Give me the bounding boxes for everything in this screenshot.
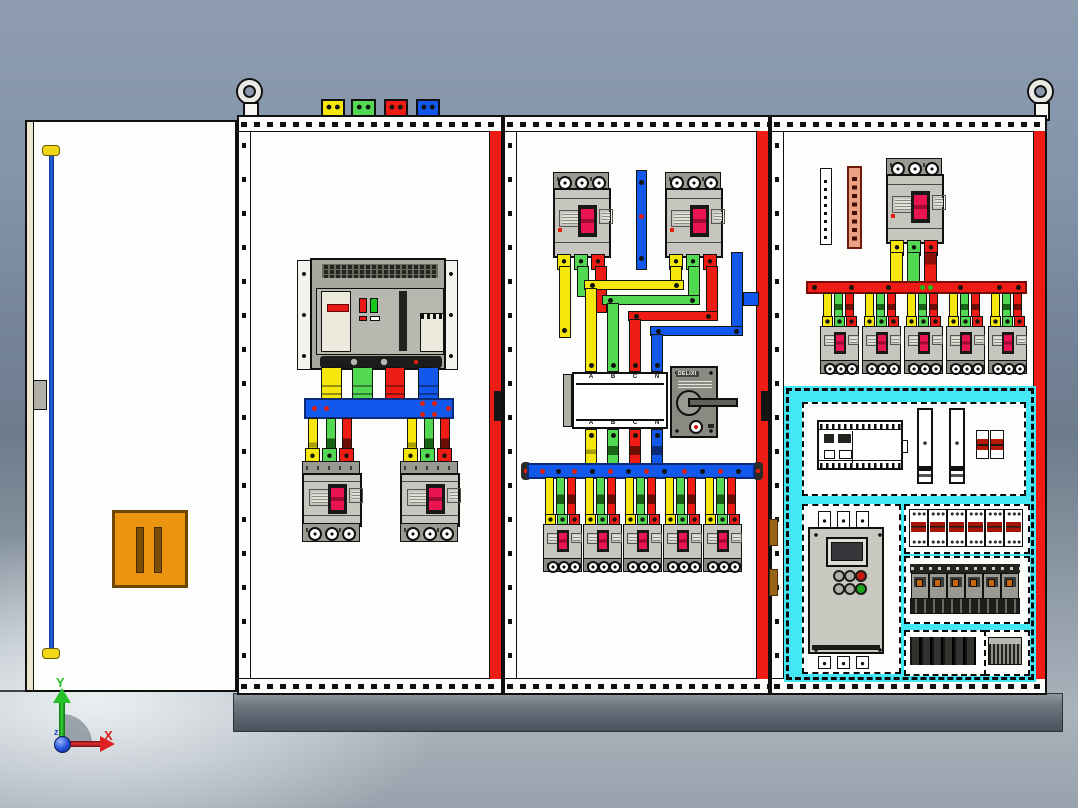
door-stiffener-rod (49, 152, 54, 657)
terminal-bolt (308, 527, 322, 541)
terminal-bolt (342, 527, 356, 541)
phase-bar-red (971, 293, 980, 317)
din-module (949, 408, 965, 484)
acb-nameplate (321, 291, 351, 352)
cross-bar-yellow (584, 280, 684, 290)
phase-trio (665, 477, 696, 515)
breaker-info-label (932, 195, 946, 210)
acb-terminal-cover (420, 313, 444, 352)
plc-port[interactable] (824, 450, 835, 459)
breaker-toggle[interactable] (719, 533, 727, 549)
orientation-triad: Y X z (30, 675, 150, 765)
breaker-toggle[interactable] (693, 209, 706, 233)
plc-side-tab (902, 440, 908, 453)
breaker-info-label (848, 335, 859, 345)
acb-off-button[interactable] (359, 298, 367, 313)
plc-relay-icon (824, 434, 834, 443)
breaker-body (988, 326, 1027, 362)
switch-brand-label: DELIXI (676, 371, 699, 377)
soft-starter (808, 527, 884, 654)
breaker-terminal-shroud (583, 558, 622, 572)
mccb-outgoing (904, 316, 941, 372)
terminal-relay-module (928, 509, 947, 547)
feed-bar-yellow (890, 252, 903, 283)
acb-indicator-white (370, 316, 380, 321)
switch-feed-yellow (585, 288, 597, 372)
starter-terminal-tab (837, 656, 850, 669)
phase-bar-yellow (907, 293, 916, 317)
phase-bar-yellow (705, 477, 714, 515)
breaker-terminal-shroud (946, 360, 985, 374)
terminal-bolt (1014, 363, 1026, 375)
breaker-info-label (731, 533, 742, 543)
phase-trio (585, 477, 616, 515)
phase-bar-green (716, 477, 725, 515)
phase-bar-green (556, 477, 565, 515)
breaker-terminal-shroud (862, 360, 901, 374)
switch-text-lines (678, 381, 712, 390)
switch-terminal-label: C (630, 373, 640, 381)
breaker-body (665, 188, 723, 258)
phase-trio (949, 293, 980, 317)
breaker-terminal-shroud (820, 360, 859, 374)
breaker-body (400, 473, 460, 527)
breaker-info-label (1016, 335, 1027, 345)
bay-frame-top (772, 117, 1045, 132)
lifting-eye-right (1029, 80, 1052, 103)
breaker-toggle[interactable] (836, 335, 844, 351)
phase-trio (823, 293, 854, 317)
starter-terminal-tab (818, 656, 831, 669)
acb-face-panel (316, 288, 444, 355)
phase-bar-green (1002, 293, 1011, 317)
din-breaker[interactable] (965, 573, 983, 599)
breaker-info-label (447, 488, 461, 503)
z-axis-label: z (54, 727, 59, 737)
acb-busbar-red (385, 367, 405, 400)
breaker-info-label (974, 335, 985, 345)
bay-frame-left (772, 131, 784, 679)
breaker-toggle[interactable] (559, 533, 567, 549)
riser-red (706, 266, 718, 313)
phase-trio (907, 293, 938, 317)
phase-bar-red (929, 293, 938, 317)
contactor-block (910, 637, 976, 665)
phase-bar-red (607, 477, 616, 515)
acb-busbar-blue (418, 367, 439, 400)
phase-bar-green (676, 477, 685, 515)
phase-trio (705, 477, 736, 515)
din-breaker[interactable] (911, 573, 929, 599)
mccb-outgoing (862, 316, 899, 372)
origin-sphere (54, 736, 71, 753)
breaker-indicator (558, 228, 562, 232)
acb-indicator-red (359, 316, 367, 321)
phase-bar-yellow (823, 293, 832, 317)
phase-bar-yellow (865, 293, 874, 317)
relay-pair-block (976, 430, 989, 459)
riser-green (688, 266, 700, 297)
breaker-toggle[interactable] (331, 488, 344, 510)
terminal-bolt (609, 561, 621, 573)
acb-busbar-green (352, 367, 373, 400)
acb-flange-left (297, 260, 311, 370)
rod-clamp-bottom (42, 648, 60, 659)
cabinet-plinth (233, 693, 1063, 732)
breaker-toggle[interactable] (962, 335, 970, 351)
breaker-body (886, 174, 944, 244)
comb-terminal-block (988, 637, 1022, 665)
terminal-bolt (423, 527, 437, 541)
mccb-outgoing (623, 514, 660, 570)
terminal-bolt (325, 527, 339, 541)
breaker-info-label (349, 488, 363, 503)
heater-slot (136, 527, 144, 573)
mccb-outgoing (820, 316, 857, 372)
phase-bar-red (687, 477, 696, 515)
starter-display-screen (831, 542, 863, 561)
plc-port[interactable] (839, 450, 852, 459)
breaker-info-label (890, 335, 901, 345)
breaker-info-label (599, 209, 613, 224)
bay-frame-left (505, 131, 517, 679)
terminal-bolt (930, 363, 942, 375)
switch-feed-green (607, 303, 619, 372)
breaker-body (904, 326, 943, 362)
neutral-riser-center (636, 170, 647, 270)
breaker-terminal-shroud (663, 558, 702, 572)
y-axis-label: Y (56, 675, 65, 690)
terminal-relay-module (985, 509, 1004, 547)
phase-bar-red (647, 477, 656, 515)
rod-clamp-top (42, 145, 60, 156)
starter-terminal-tab (837, 511, 850, 528)
breaker-toggle[interactable] (1004, 335, 1012, 351)
switch-terminal-label: B (608, 419, 618, 427)
breaker-info-label (611, 533, 622, 543)
breaker-indicator (670, 228, 674, 232)
breaker-toggle[interactable] (639, 533, 647, 549)
terminal-bolt (649, 561, 661, 573)
bay-frame-bottom (239, 678, 501, 693)
neutral-link-strip (820, 168, 832, 245)
mccb-feeder-2 (400, 448, 456, 540)
plc-relay-icon (838, 434, 851, 443)
door-heater-box (112, 510, 188, 588)
door-latch-bar (761, 391, 769, 421)
phase-bar-yellow (949, 293, 958, 317)
y-axis-arrowhead (53, 688, 71, 703)
breaker-toggle[interactable] (878, 335, 886, 351)
switch-handle[interactable] (688, 398, 738, 407)
acb-busbar-yellow (321, 367, 342, 400)
terminal-bolt (406, 527, 420, 541)
breaker-toggle[interactable] (914, 195, 927, 219)
breaker-body (703, 524, 742, 560)
switch-terminal-label: N (652, 373, 662, 381)
mccb-outgoing (988, 316, 1025, 372)
phase-bar-yellow (545, 477, 554, 515)
breaker-toggle[interactable] (920, 335, 928, 351)
terminal-relay-module (966, 509, 985, 547)
phase-bar-green (834, 293, 843, 317)
phase-bar-yellow (991, 293, 1000, 317)
breaker-terminal-shroud (302, 523, 360, 542)
lifting-eye-left (238, 80, 261, 103)
feed-bar-red (924, 252, 937, 283)
starter-terminal-tab (856, 656, 869, 669)
phase-bar-green (960, 293, 969, 317)
din-breaker[interactable] (983, 573, 1001, 599)
phase-trio (545, 477, 576, 515)
phase-bar-green (596, 477, 605, 515)
bay-frame-left (239, 131, 251, 679)
plc-module (817, 420, 903, 470)
copper-earth-bar (847, 166, 862, 249)
breaker-toggle[interactable] (599, 533, 607, 549)
acb-rating-plug (327, 304, 349, 312)
terminal-bolt (689, 561, 701, 573)
switch-terminal-label: A (586, 373, 596, 381)
breaker-body (862, 326, 901, 362)
phase-bar-yellow (665, 477, 674, 515)
door-latch-bar (494, 391, 502, 421)
mccb-incoming-right (665, 172, 719, 268)
terminal-bolt (972, 363, 984, 375)
breaker-indicator (891, 214, 895, 218)
din-breaker[interactable] (1001, 573, 1019, 599)
starter-stop-button[interactable] (855, 570, 867, 582)
mccb-outgoing (663, 514, 700, 570)
din-module (917, 408, 933, 484)
switch-dial (689, 420, 703, 434)
breaker-info-label (571, 533, 582, 543)
breaker-terminal-shroud (703, 558, 742, 572)
door-lock-bracket (33, 380, 47, 410)
bay-frame-top (239, 117, 501, 132)
starter-terminal-tab (856, 511, 869, 528)
acb-on-button[interactable] (370, 298, 378, 313)
feed-bar-green (907, 252, 920, 283)
bay-frame-bottom (505, 678, 768, 693)
cabinet-door (25, 120, 237, 692)
phase-bar-green (918, 293, 927, 317)
terminal-relay-module (1004, 509, 1023, 547)
neutral-jog (743, 292, 759, 306)
phase-bar-yellow (585, 477, 594, 515)
cad-viewport[interactable]: A B C N A B C N DELIXI (0, 0, 1078, 808)
din-breaker[interactable] (947, 573, 965, 599)
breaker-body (623, 524, 662, 560)
mccb-outgoing (703, 514, 740, 570)
terminal-bolt (440, 527, 454, 541)
din-rail (910, 564, 1020, 573)
breaker-body (583, 524, 622, 560)
phase-trio (865, 293, 896, 317)
breaker-body (946, 326, 985, 362)
breaker-info-label (691, 533, 702, 543)
breaker-terminal-shroud (543, 558, 582, 572)
plc-terminal-row-top (819, 422, 901, 430)
mccb-outgoing (946, 316, 983, 372)
breaker-terminal-shroud (904, 360, 943, 374)
phase-bar-yellow (625, 477, 634, 515)
plc-terminal-row-bottom (819, 460, 901, 468)
phase-trio (625, 477, 656, 515)
din-breaker[interactable] (929, 573, 947, 599)
relay-pair-block (990, 430, 1004, 459)
terminal-bolt (569, 561, 581, 573)
mccb-feeder-1 (302, 448, 358, 540)
hinge-block (769, 569, 778, 596)
mccb-incoming-left (553, 172, 607, 268)
cross-bar-red (628, 311, 718, 321)
phase-bar-red (567, 477, 576, 515)
phase-bar-green (876, 293, 885, 317)
breaker-info-label (932, 335, 943, 345)
acb-flange-right (444, 260, 458, 370)
breaker-toggle[interactable] (679, 533, 687, 549)
terminal-bolt (888, 363, 900, 375)
terminal-relay-module (947, 509, 966, 547)
x-axis-label: X (104, 728, 113, 743)
breaker-toggle[interactable] (429, 488, 442, 510)
breaker-body (302, 473, 362, 527)
bay-frame-top (505, 117, 768, 132)
acb-handle-slot (399, 291, 407, 351)
breaker-terminal-shroud (988, 360, 1027, 374)
changeover-switch-endcap (563, 374, 572, 427)
terminal-relay-module (909, 509, 928, 547)
switch-dial-mark (708, 424, 714, 428)
breaker-info-label (651, 533, 662, 543)
air-circuit-breaker (310, 258, 446, 370)
phase-trio (991, 293, 1022, 317)
starter-bottom-rail (812, 645, 880, 650)
phase-bar-red (845, 293, 854, 317)
hinge-block (769, 519, 778, 546)
terminal-block-row (910, 598, 1020, 614)
switch-terminal-label: C (630, 419, 640, 427)
breaker-info-label (711, 209, 725, 224)
mccb-outgoing (583, 514, 620, 570)
neutral-riser-right (731, 252, 743, 330)
plc-divider (852, 431, 853, 463)
terminal-bolt (846, 363, 858, 375)
phase-bar-red (887, 293, 896, 317)
breaker-body (553, 188, 611, 258)
breaker-toggle[interactable] (581, 209, 594, 233)
acb-vent-grid (322, 264, 438, 278)
phase-bar-red (727, 477, 736, 515)
changeover-switch-body: DELIXI (670, 366, 718, 438)
starter-run-button[interactable] (855, 583, 867, 595)
switch-terminal-label: N (652, 419, 662, 427)
mccb-outgoing (543, 514, 580, 570)
breaker-body (820, 326, 859, 362)
switch-terminal-label: B (608, 373, 618, 381)
breaker-terminal-shroud (400, 523, 458, 542)
breaker-terminal-shroud (623, 558, 662, 572)
breaker-body (543, 524, 582, 560)
breaker-body (663, 524, 702, 560)
starter-terminal-tab (818, 511, 831, 528)
phase-bar-red (1013, 293, 1022, 317)
cross-bar-blue (650, 326, 743, 336)
heater-slot (154, 527, 162, 573)
switch-terminal-label: A (586, 419, 596, 427)
mccb-bay3-incoming (886, 158, 940, 254)
phase-bar-green (636, 477, 645, 515)
terminal-bolt (729, 561, 741, 573)
